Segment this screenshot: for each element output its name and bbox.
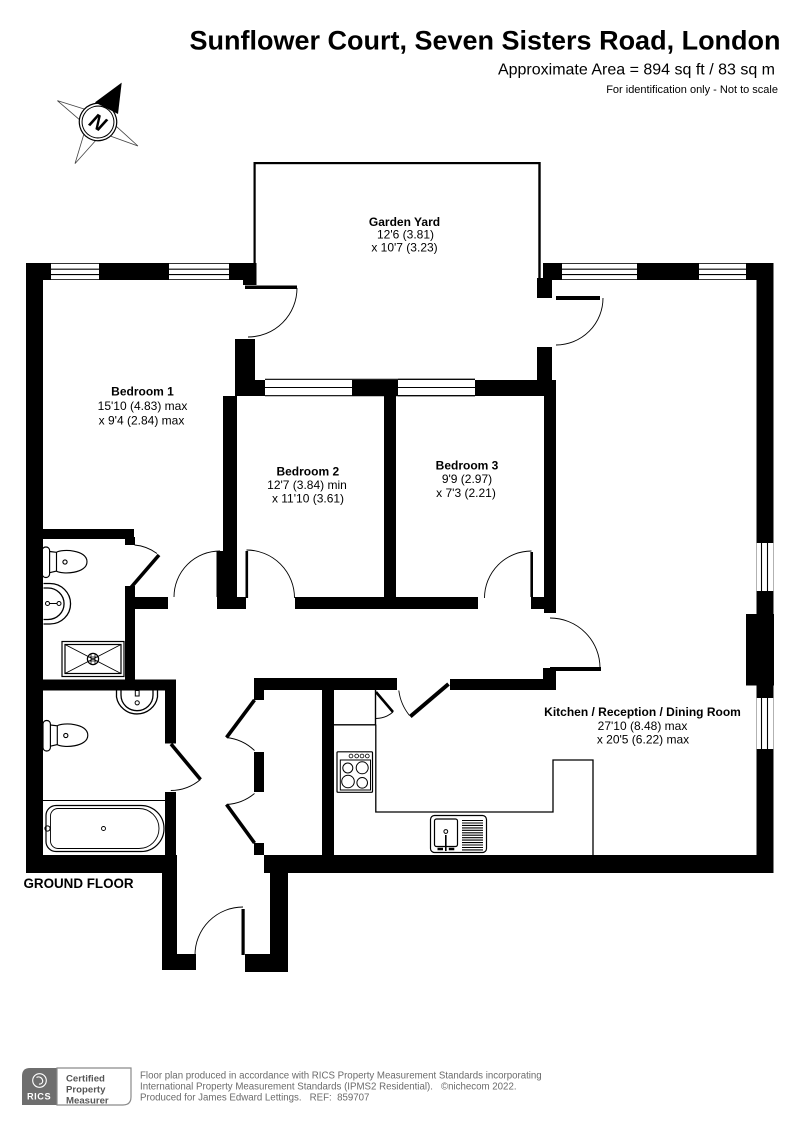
svg-text:Floor plan produced in accorda: Floor plan produced in accordance with R… — [140, 1071, 542, 1082]
svg-text:For identification only - Not: For identification only - Not to scale — [606, 84, 778, 96]
svg-text:RICS: RICS — [27, 1092, 51, 1102]
svg-text:x 20'5 (6.22) max: x 20'5 (6.22) max — [597, 733, 689, 747]
svg-text:Sunflower Court, Seven Sisters: Sunflower Court, Seven Sisters Road, Lon… — [189, 26, 780, 56]
svg-text:x 7'3 (2.21): x 7'3 (2.21) — [436, 486, 496, 500]
svg-text:Property: Property — [66, 1085, 106, 1096]
svg-text:x 9'4 (2.84) max: x 9'4 (2.84) max — [99, 413, 185, 427]
svg-text:Approximate Area = 894 sq ft /: Approximate Area = 894 sq ft / 83 sq m — [498, 62, 775, 79]
svg-text:Certified: Certified — [66, 1074, 105, 1085]
svg-text:International Property Measure: International Property Measurement Stand… — [140, 1082, 517, 1093]
svg-text:Bedroom 1: Bedroom 1 — [111, 384, 174, 398]
svg-text:12'7 (3.84) min: 12'7 (3.84) min — [267, 478, 347, 492]
svg-text:Bedroom 3: Bedroom 3 — [436, 459, 499, 473]
svg-text:15'10 (4.83) max: 15'10 (4.83) max — [98, 399, 188, 413]
svg-text:Bedroom 2: Bedroom 2 — [276, 465, 339, 479]
svg-text:Measurer: Measurer — [66, 1096, 109, 1107]
svg-text:Produced for James Edward Lett: Produced for James Edward Lettings. REF:… — [140, 1093, 369, 1104]
svg-text:x 10'7 (3.23): x 10'7 (3.23) — [371, 240, 437, 254]
svg-text:9'9 (2.97): 9'9 (2.97) — [442, 472, 492, 486]
svg-text:Kitchen / Reception / Dining R: Kitchen / Reception / Dining Room — [544, 705, 741, 719]
svg-text:27'10 (8.48) max: 27'10 (8.48) max — [598, 719, 688, 733]
svg-text:GROUND FLOOR: GROUND FLOOR — [24, 876, 134, 891]
svg-text:x 11'10 (3.61): x 11'10 (3.61) — [272, 492, 344, 506]
